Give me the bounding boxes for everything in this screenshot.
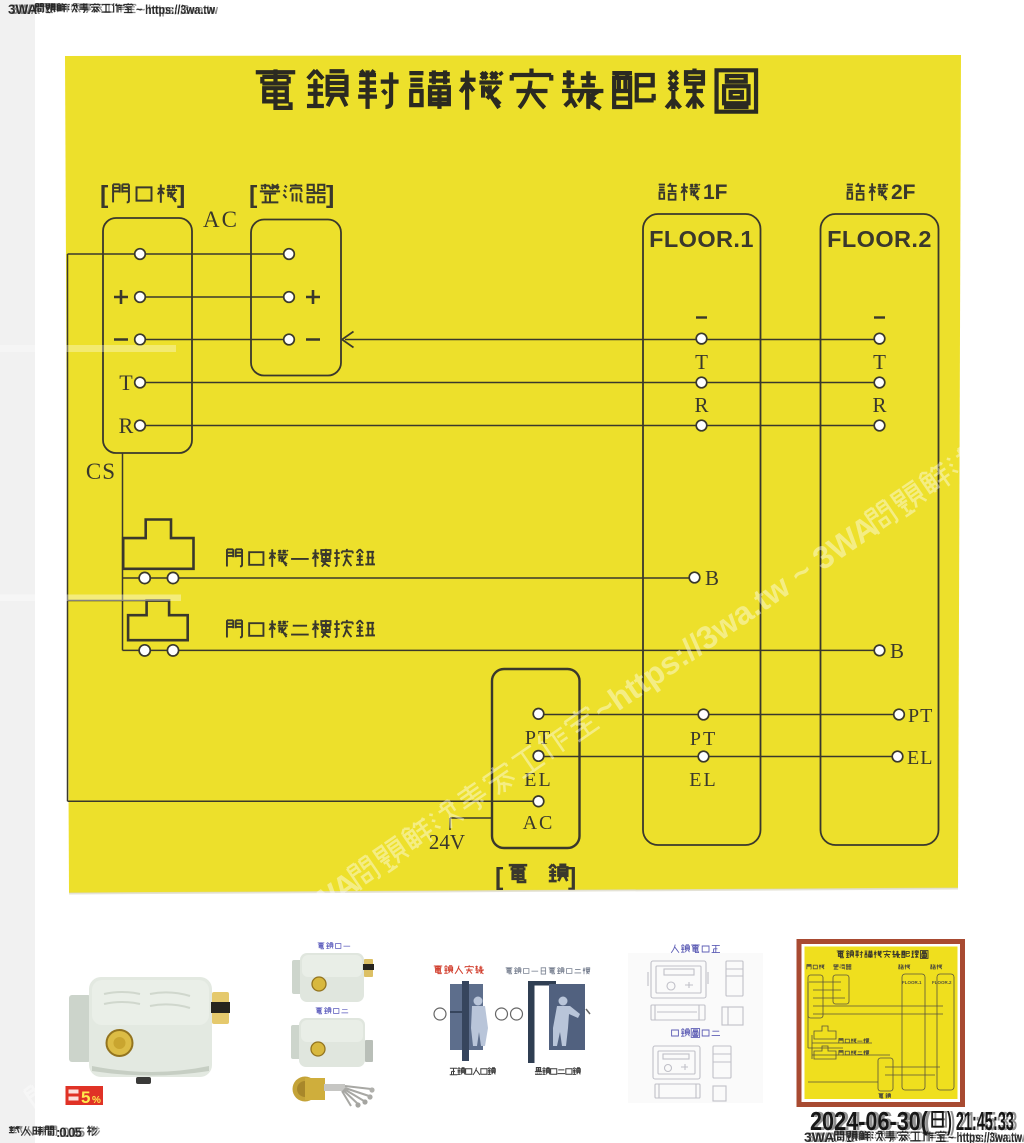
svg-text:EL: EL <box>689 769 717 791</box>
svg-text:AC: AC <box>203 207 239 232</box>
svg-text:2F: 2F <box>891 181 916 204</box>
svg-text:B: B <box>705 566 719 590</box>
svg-text::0.05: :0.05 <box>59 1125 85 1140</box>
svg-text:R: R <box>119 413 134 438</box>
svg-text:[: [ <box>100 181 109 209</box>
svg-text:R: R <box>694 393 708 417</box>
svg-text:T: T <box>119 370 133 395</box>
svg-text:[: [ <box>495 863 504 891</box>
svg-text:[: [ <box>249 181 258 209</box>
svg-text:PT: PT <box>908 705 933 727</box>
svg-text:3WA: 3WA <box>807 1129 837 1143</box>
svg-text:FLOOR.1: FLOOR.1 <box>649 226 754 252</box>
svg-text:EL: EL <box>907 747 933 769</box>
svg-text:24V: 24V <box>429 830 465 854</box>
svg-text:~ https://3wa.tw: ~ https://3wa.tw <box>139 2 219 17</box>
svg-text:]: ] <box>326 181 334 209</box>
svg-text:5: 5 <box>81 1088 90 1107</box>
svg-text:FLOOR.2: FLOOR.2 <box>932 980 952 985</box>
svg-text:3WA: 3WA <box>11 2 41 17</box>
svg-text:AC: AC <box>523 812 555 834</box>
svg-text:R: R <box>872 393 886 417</box>
svg-text:B: B <box>890 639 904 663</box>
svg-text:~ https://3wa.tw: ~ https://3wa.tw <box>951 1130 1024 1143</box>
svg-text:T: T <box>873 350 886 374</box>
svg-text:]: ] <box>568 863 576 891</box>
svg-text:EL: EL <box>524 769 552 791</box>
svg-text:%: % <box>92 1095 101 1106</box>
svg-text:]: ] <box>177 181 185 209</box>
svg-text:FLOOR.2: FLOOR.2 <box>827 226 932 252</box>
svg-text:T: T <box>695 350 708 374</box>
svg-text:FLOOR.1: FLOOR.1 <box>902 980 922 985</box>
svg-text:CS: CS <box>86 459 116 484</box>
svg-text:PT: PT <box>690 728 717 750</box>
svg-text:1F: 1F <box>703 181 728 204</box>
